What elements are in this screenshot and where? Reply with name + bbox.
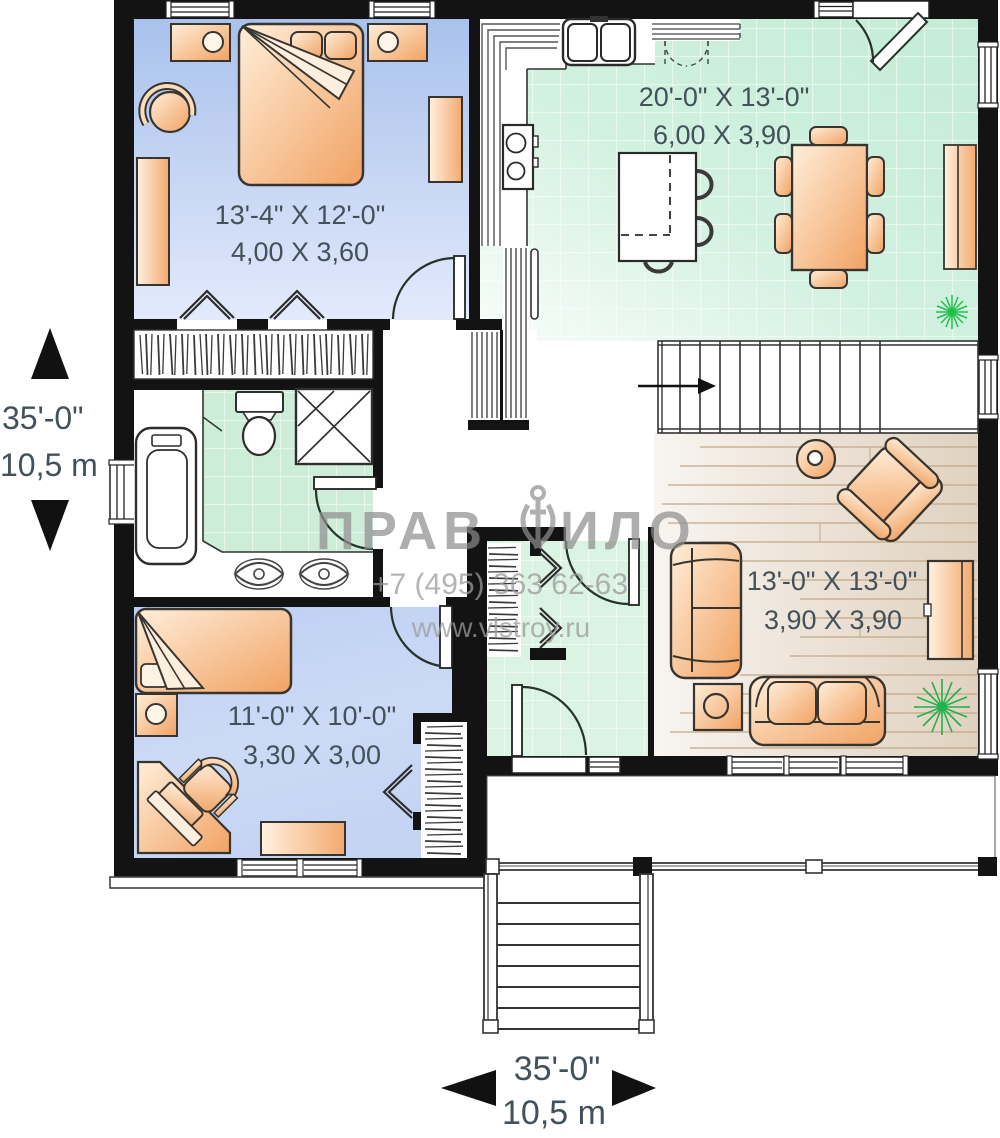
svg-text:10,5 m: 10,5 m bbox=[502, 1094, 606, 1132]
svg-text:11'-0" X 10'-0": 11'-0" X 10'-0" bbox=[228, 701, 397, 731]
svg-text:6,00 X 3,90: 6,00 X 3,90 bbox=[653, 120, 791, 150]
svg-text:13'-0" X 13'-0": 13'-0" X 13'-0" bbox=[747, 566, 918, 596]
svg-text:35'-0": 35'-0" bbox=[514, 1050, 601, 1088]
svg-text:3,90 X 3,90: 3,90 X 3,90 bbox=[764, 605, 902, 635]
svg-text:ПРАВ: ПРАВ bbox=[316, 501, 488, 561]
svg-text:3,30 X 3,00: 3,30 X 3,00 bbox=[243, 740, 381, 770]
svg-text:10,5 m: 10,5 m bbox=[0, 447, 98, 483]
svg-text:35'-0": 35'-0" bbox=[2, 400, 84, 436]
svg-text:+7 (495) 363 62-63: +7 (495) 363 62-63 bbox=[372, 568, 628, 601]
svg-text:4,00 X 3,60: 4,00 X 3,60 bbox=[231, 237, 369, 267]
svg-text:ИЛО: ИЛО bbox=[560, 501, 697, 561]
svg-text:www.vlstroy.ru: www.vlstroy.ru bbox=[411, 612, 590, 643]
svg-text:20'-0" X 13'-0": 20'-0" X 13'-0" bbox=[639, 82, 810, 112]
svg-text:13'-4" X 12'-0": 13'-4" X 12'-0" bbox=[215, 200, 386, 230]
